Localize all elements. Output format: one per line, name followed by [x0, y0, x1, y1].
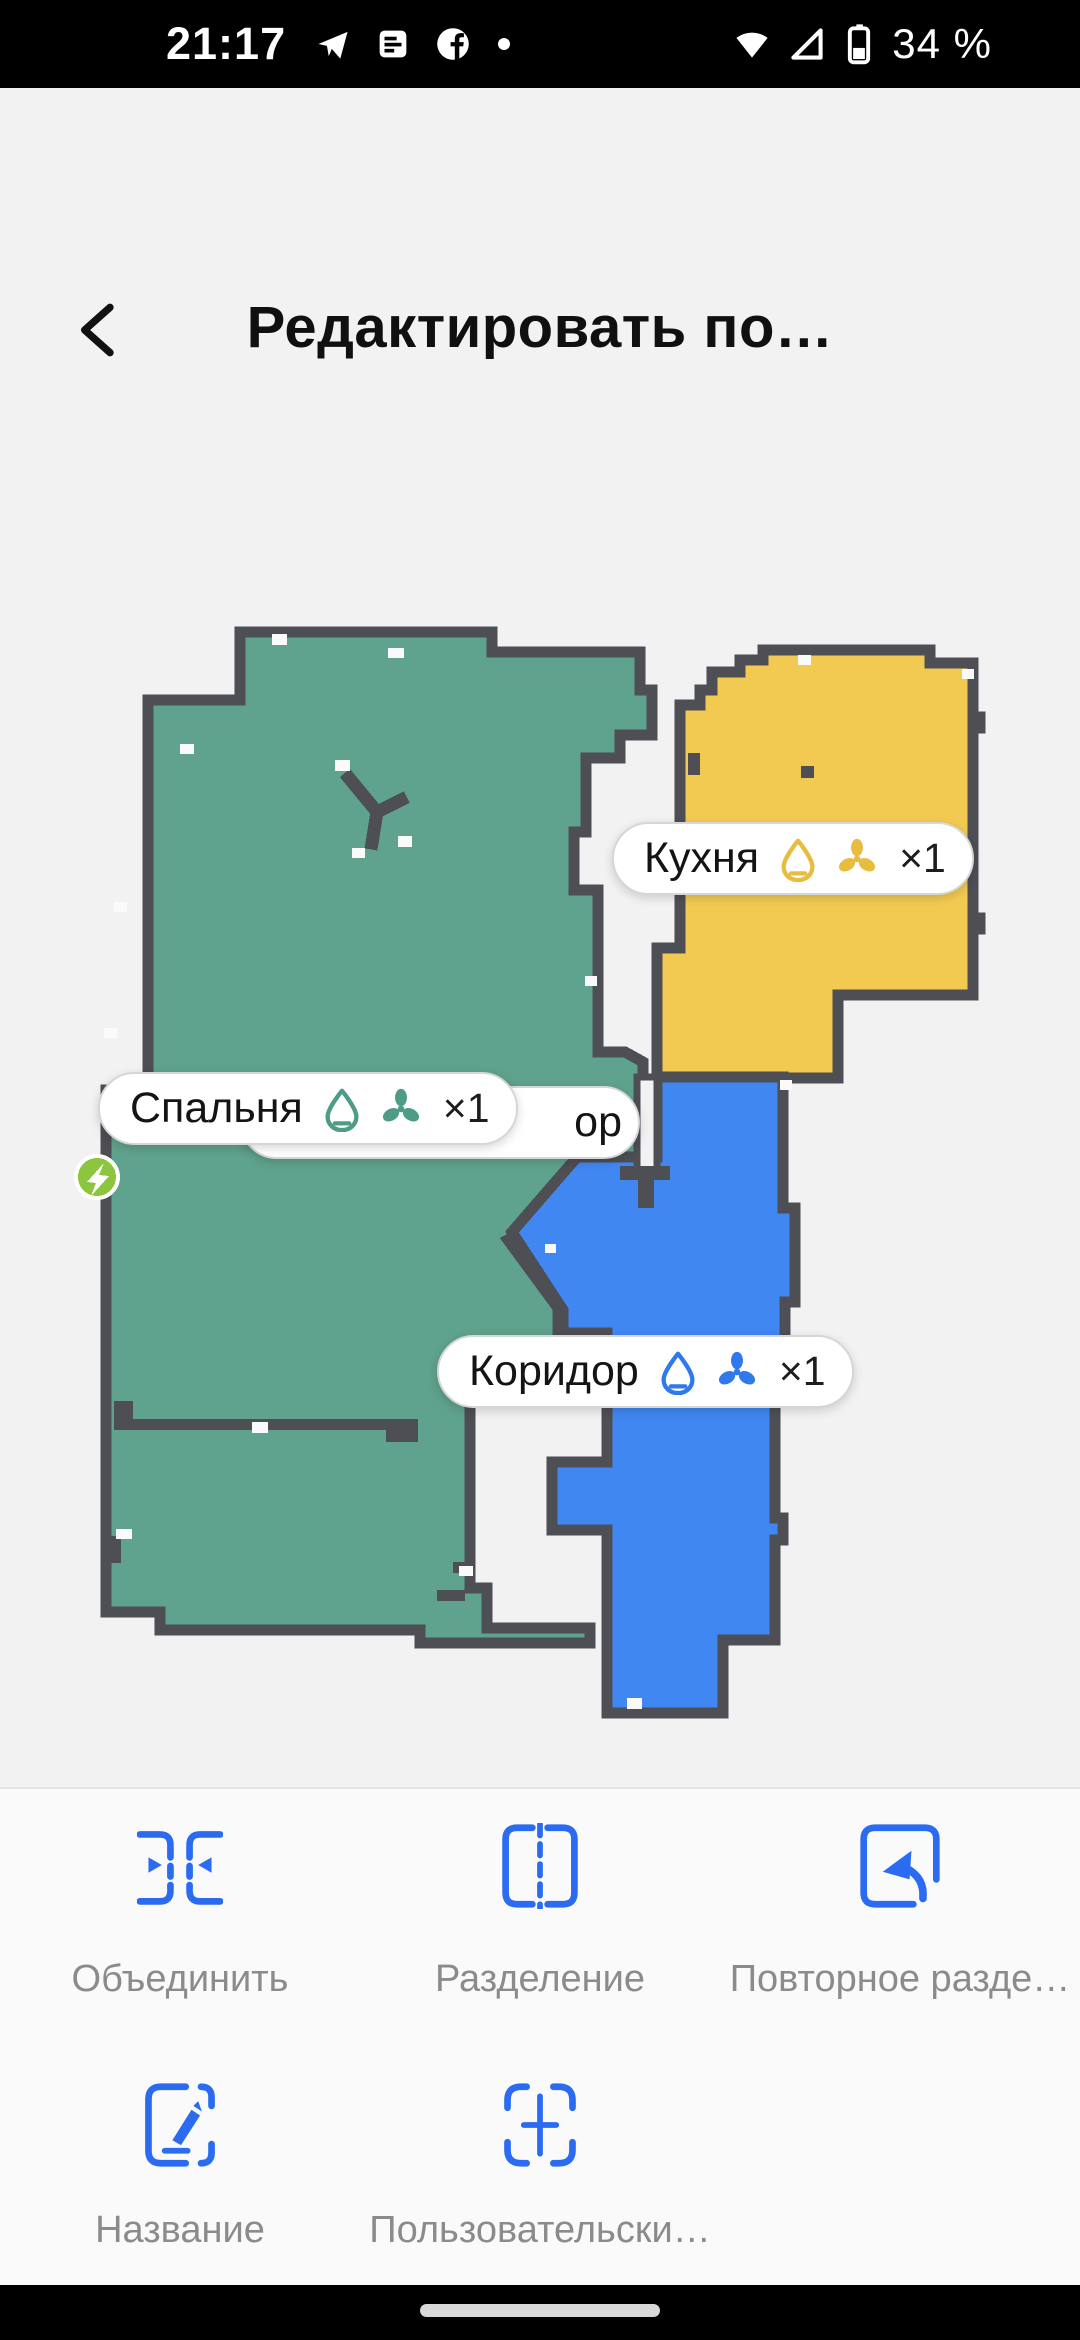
- clean-count: ×1: [899, 835, 946, 882]
- system-nav-bar: [0, 2285, 1080, 2340]
- split-icon: [497, 1823, 583, 1909]
- telegram-notification-icon: [316, 27, 350, 61]
- custom-zone-icon: [497, 2082, 583, 2168]
- room-name: Коридор: [469, 1347, 639, 1396]
- merge-rooms-button[interactable]: Объединить: [0, 1823, 360, 2001]
- map-wall-cap-stem: [638, 1180, 654, 1208]
- fan-icon: [379, 1087, 423, 1131]
- water-drop-icon: [319, 1086, 365, 1132]
- split-room-label: Разделение: [435, 1958, 645, 2001]
- rename-room-button[interactable]: Название: [0, 2082, 360, 2252]
- room-label-corridor[interactable]: Коридор ×1: [437, 1335, 854, 1408]
- room-label-kitchen[interactable]: Кухня ×1: [612, 822, 974, 895]
- map-wall-cap: [620, 1166, 670, 1180]
- clock: 21:17: [166, 18, 286, 70]
- custom-zone-button[interactable]: Пользовательски…: [360, 2082, 720, 2252]
- custom-zone-label: Пользовательски…: [369, 2209, 710, 2252]
- resplit-icon: [857, 1823, 943, 1909]
- clean-count: ×1: [779, 1348, 826, 1395]
- message-notification-icon: [376, 27, 410, 61]
- fan-icon: [715, 1350, 759, 1394]
- room-name: Кухня: [644, 834, 759, 883]
- header: Редактировать по…: [0, 88, 1080, 288]
- merge-rooms-label: Объединить: [72, 1958, 289, 2001]
- room-name: Спальня: [130, 1084, 303, 1133]
- clean-count: ×1: [443, 1085, 490, 1132]
- fan-icon: [835, 837, 879, 881]
- rename-icon: [137, 2082, 223, 2168]
- charging-dock-icon: [76, 1156, 118, 1198]
- room-label-bedroom[interactable]: Спальня ×1: [98, 1072, 518, 1145]
- cell-signal-icon: [788, 25, 826, 63]
- room-name-fragment: ор: [574, 1098, 622, 1147]
- facebook-notification-icon: [436, 27, 470, 61]
- rename-room-label: Название: [95, 2209, 265, 2252]
- status-bar: 21:17 34 %: [0, 0, 1080, 88]
- gesture-handle[interactable]: [420, 2304, 660, 2317]
- resplit-room-label: Повторное разде…: [730, 1958, 1071, 2001]
- battery-percent: 34 %: [892, 20, 992, 68]
- water-drop-icon: [775, 836, 821, 882]
- water-drop-icon: [655, 1349, 701, 1395]
- wifi-icon: [732, 25, 772, 63]
- merge-icon: [137, 1823, 223, 1909]
- notification-dot-icon: [496, 36, 512, 52]
- split-room-button[interactable]: Разделение: [360, 1823, 720, 2001]
- floor-map: [0, 290, 1080, 1790]
- map-gap-strip: [637, 1077, 657, 1173]
- resplit-room-button[interactable]: Повторное разде…: [720, 1823, 1080, 2001]
- battery-icon: [842, 23, 876, 65]
